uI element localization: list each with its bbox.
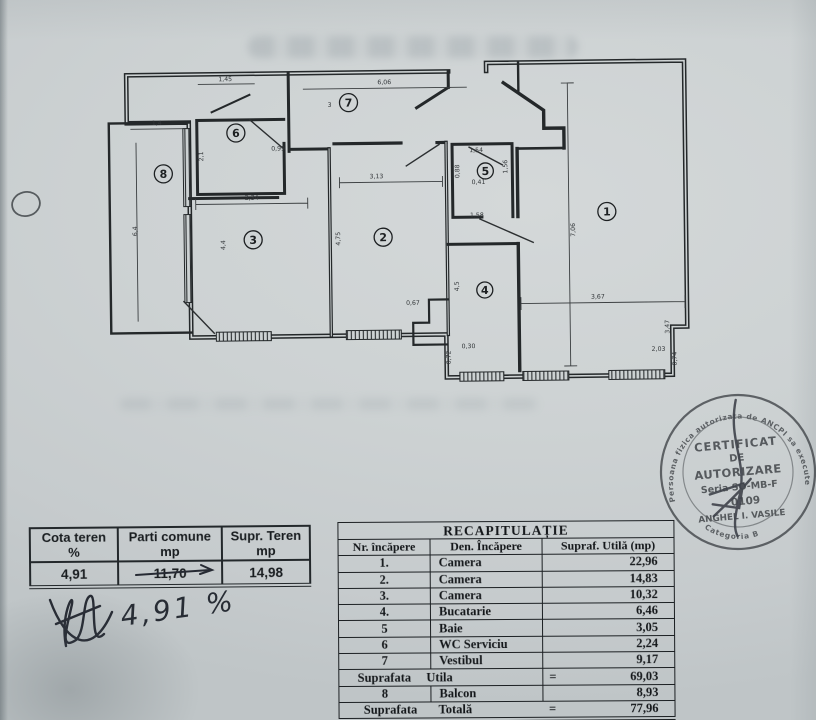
dimension-label: 3,67 xyxy=(591,294,605,301)
recap-header-den: Den. Încăpere xyxy=(430,538,542,555)
recap-totala-label: Totală xyxy=(439,703,473,716)
photo-corner-shade xyxy=(0,590,200,720)
balcony-window xyxy=(184,215,192,303)
dimension-label: 6,06 xyxy=(377,79,391,86)
table-row: 6WC Serviciu2,24 xyxy=(339,635,675,653)
terrain-header-parti: Parti comune xyxy=(121,529,219,545)
window xyxy=(216,332,271,342)
table-row: 1.Camera22,96 xyxy=(338,554,674,572)
dimension-label: 4,4 xyxy=(220,240,227,250)
terrain-header-cota: Cota teren xyxy=(33,529,115,545)
pencil-circle-doodle xyxy=(10,189,43,219)
dimension-label: 3,13 xyxy=(369,173,383,180)
terrain-value-parti: 11,70 xyxy=(118,561,222,587)
wall-room6 xyxy=(197,119,285,194)
dimension-label: 1,56 xyxy=(502,160,509,174)
balcony-window xyxy=(183,129,191,207)
dimension-label: 1,4 xyxy=(152,120,162,127)
terrain-header-parti-unit: mp xyxy=(121,544,219,560)
dimension-label: 0,88 xyxy=(454,164,461,178)
dimension-label: 0,41 xyxy=(472,179,486,186)
dimension-label: 2,1 xyxy=(198,151,205,161)
room-labels xyxy=(153,90,616,302)
outer-wall xyxy=(126,61,688,382)
stamp-line-name: ANGHEL I. VASILE xyxy=(698,508,786,526)
recapitulatie-table: RECAPITULAȚIE Nr. încăpere Den. Încăpere… xyxy=(337,520,675,720)
scanned-floor-plan-document: { "colors": { "paper": "#cdd2d3", "ink":… xyxy=(0,0,816,720)
dimension-label: 7,06 xyxy=(570,223,577,237)
certification-stamp: Persoana fizica autorizata de ANCPI sa e… xyxy=(650,384,816,560)
room-label: 8 xyxy=(159,168,167,181)
wall-room1-left xyxy=(517,149,520,371)
recap-utila-label: Utila xyxy=(426,671,452,684)
table-row: 5Baie3,05 xyxy=(338,619,674,637)
room-label: 7 xyxy=(345,97,353,110)
dimension-label: 0,99 xyxy=(271,145,285,152)
table-row: SuprafataTotală =77,96 xyxy=(339,700,675,720)
recap-title: RECAPITULAȚIE xyxy=(338,520,674,539)
table-row: 7Vestibul9,17 xyxy=(339,652,675,670)
door-swing xyxy=(406,145,439,166)
dimension-label: 1,58 xyxy=(470,212,484,219)
stamp-line-de: DE xyxy=(729,452,745,464)
terrain-table: Cota teren% Parti comunemp Supr. Terenmp… xyxy=(29,525,312,589)
recap-suprafata-label: Suprafata xyxy=(343,704,439,718)
terrain-value-cota: 4,91 xyxy=(30,561,118,587)
dimension-label: 0,72 xyxy=(446,350,453,364)
dimension-label: 4,5 xyxy=(454,281,461,291)
dimension-label: 0,30 xyxy=(462,343,476,350)
table-row: 4.Bucatarie6,46 xyxy=(338,603,674,621)
table-row: Nr. încăpere Den. Încăpere Supraf. Utilă… xyxy=(338,537,674,555)
window xyxy=(523,371,569,381)
room-label: 4 xyxy=(481,284,489,297)
terrain-header-supr-unit: mp xyxy=(225,543,307,559)
dimension-label: 1,54 xyxy=(469,147,483,154)
dimension-label: 4,75 xyxy=(335,232,342,246)
table-row: 2.Camera14,83 xyxy=(338,570,674,588)
table-row: 8Balcon8,93 xyxy=(339,684,675,702)
door-swing xyxy=(184,301,214,333)
window xyxy=(346,330,401,340)
room-label: 3 xyxy=(249,234,257,247)
door-swing xyxy=(480,218,533,243)
dimension-label: 1,45 xyxy=(218,76,232,83)
dimension-label: 3,47 xyxy=(664,320,671,334)
recap-header-nr: Nr. încăpere xyxy=(338,539,430,556)
plan-walls: 1 2 3 4 5 6 7 8 1,45 6,06 3 1,4 6,4 2,1 … xyxy=(108,61,688,386)
room-label: 5 xyxy=(481,165,489,178)
dimension-label: 2,03 xyxy=(652,346,666,353)
room-label: 2 xyxy=(379,231,387,244)
balcony-wall xyxy=(109,123,192,334)
dimension-label: 0,74 xyxy=(672,352,679,366)
terrain-value-supr: 14,98 xyxy=(222,560,310,586)
table-row: RECAPITULAȚIE xyxy=(338,520,674,539)
table-row: SuprafataUtila =69,03 xyxy=(339,668,675,686)
door-swing xyxy=(250,119,282,147)
table-row: Cota teren% Parti comunemp Supr. Terenmp xyxy=(30,526,310,562)
dimension-label: 3 xyxy=(328,102,332,109)
window xyxy=(460,372,504,382)
dimension-label: 6,4 xyxy=(132,226,139,236)
terrain-header-supr: Supr. Teren xyxy=(225,528,307,544)
table-row: 3.Camera10,32 xyxy=(338,586,674,604)
room-label: 6 xyxy=(232,127,240,140)
dimension-label: 0,67 xyxy=(406,300,420,307)
room-label: 1 xyxy=(603,205,611,218)
window xyxy=(609,370,665,380)
terrain-header-cota-unit: % xyxy=(33,544,115,560)
recap-suprafata-label: Suprafata xyxy=(342,671,426,685)
dimension-label: 2,34 xyxy=(245,195,259,202)
table-row: 4,91 11,70 14,98 xyxy=(30,560,310,587)
